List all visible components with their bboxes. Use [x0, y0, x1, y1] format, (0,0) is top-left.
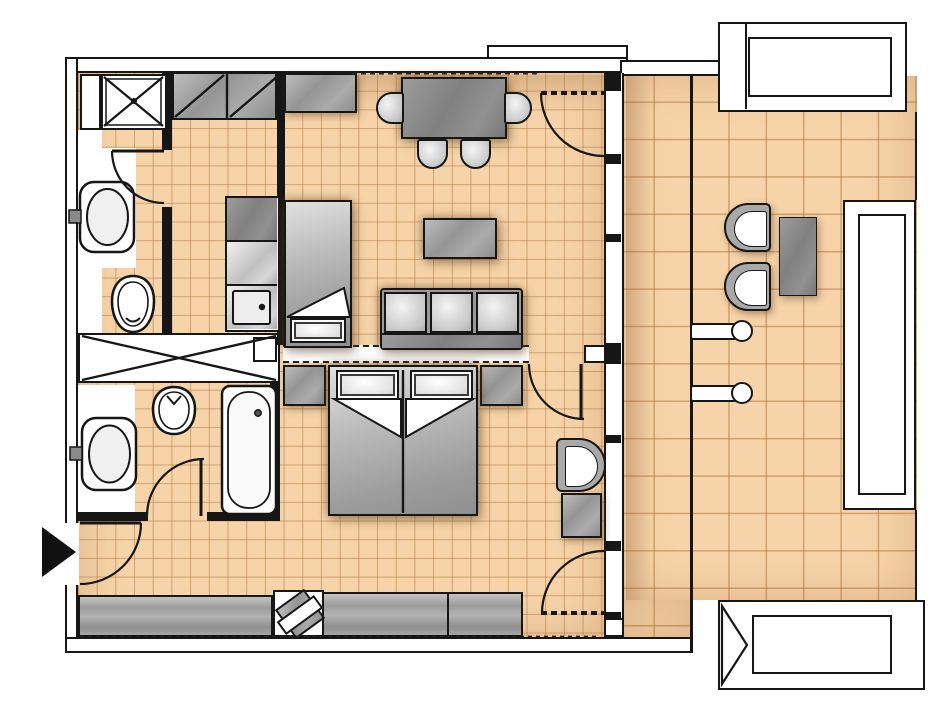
desk	[322, 592, 523, 637]
wardrobe-band	[78, 333, 280, 383]
planter-right-inner	[858, 214, 906, 495]
facade-mullion	[606, 234, 621, 242]
terrace-shading	[626, 76, 652, 600]
terrace-chair-1	[724, 203, 771, 252]
terrace-chair-1-seat	[734, 211, 767, 247]
armchair-seat	[565, 446, 598, 487]
terrace-chair-2-seat	[734, 270, 767, 306]
kitchen-sink-section	[227, 284, 277, 329]
entry-door-opening	[64, 523, 79, 585]
kitchen-counter	[225, 196, 280, 332]
sofa-back	[382, 333, 521, 348]
dining-table	[401, 77, 507, 139]
wall-bathroom-bottom-a	[78, 512, 148, 521]
terrace-divider	[690, 76, 693, 653]
sofa-cushion	[430, 292, 473, 333]
terrace-floor-strip	[624, 600, 693, 637]
bathroom-bottom-vanity	[78, 385, 135, 512]
bed-pillow-left	[336, 370, 399, 400]
facade-mullion	[606, 154, 621, 164]
terrace-table	[779, 217, 817, 296]
bedroom-side-table	[561, 493, 602, 538]
facade-mullion	[606, 435, 621, 443]
planter-bottom	[718, 600, 925, 690]
glazed-facade	[604, 73, 624, 637]
wall-bottom	[65, 637, 692, 653]
planter-right	[843, 200, 916, 510]
counter-mid	[227, 240, 277, 284]
planter-top-inner	[748, 37, 892, 97]
wall-bathroom-top-right-b	[162, 207, 172, 333]
wall-bathroom-bottom-right	[270, 383, 280, 512]
facade-mullion	[606, 73, 621, 91]
terrace-wall-top	[620, 60, 720, 76]
facade-mullion	[606, 343, 621, 364]
terrace-edge-a	[915, 112, 917, 200]
wall-light-2-head	[731, 382, 753, 404]
dining-chair-bottom-2	[460, 139, 491, 169]
wall-light-1-arm	[690, 323, 737, 340]
wall-light-1-head	[731, 320, 753, 342]
wall-top	[65, 57, 628, 73]
wall-bathroom-bottom-b	[207, 512, 280, 521]
dining-chair-bottom-1	[417, 139, 448, 169]
bed-pillow-right	[410, 370, 473, 400]
bathroom-top-vanity	[78, 148, 136, 268]
facade-mullion	[606, 541, 621, 551]
daybed-pillow	[290, 318, 346, 343]
nightstand-left	[283, 365, 326, 406]
tall-cabinet-row	[172, 72, 277, 120]
hall-sideboard	[78, 595, 273, 637]
planter-top	[718, 22, 907, 112]
terrace-chair-2	[724, 262, 771, 311]
wall-top-step	[487, 45, 628, 59]
cooktop	[227, 198, 277, 240]
sofa-cushion	[384, 292, 427, 333]
planter-bottom-inner	[752, 615, 892, 674]
coffee-table	[423, 218, 497, 259]
nightstand-right	[480, 365, 523, 406]
sofa	[380, 288, 523, 350]
sideboard-top	[284, 73, 357, 113]
floor-plan	[0, 0, 950, 714]
dining-chair-left	[376, 92, 404, 124]
double-bed	[328, 365, 478, 516]
planter-top-divider	[745, 24, 747, 109]
facade-corner-box	[604, 618, 624, 637]
passage-box	[253, 337, 277, 362]
daybed	[284, 200, 352, 348]
sofa-cushion	[476, 292, 519, 333]
shower-shelf	[80, 74, 101, 130]
wall-light-2-arm	[690, 385, 737, 402]
terrace-edge-b	[915, 510, 917, 602]
shower-tray	[101, 74, 167, 130]
